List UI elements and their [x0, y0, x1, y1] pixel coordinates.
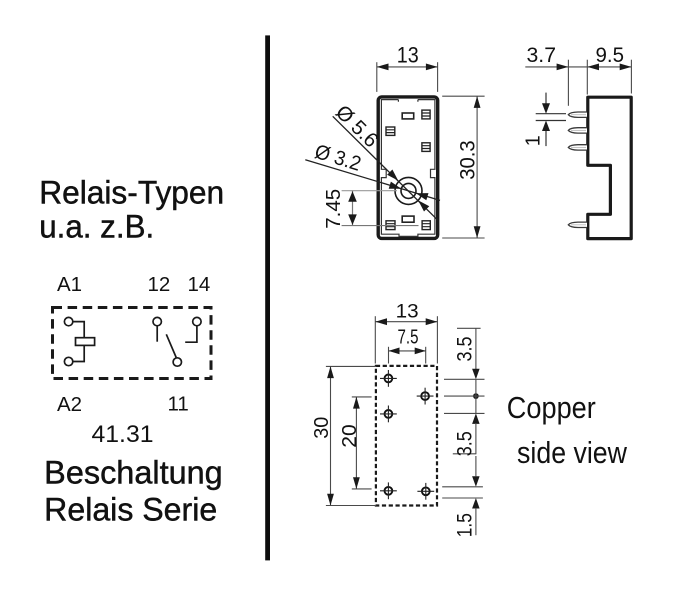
svg-text:1: 1 [523, 135, 545, 146]
svg-text:11: 11 [168, 393, 189, 416]
svg-text:u.a. z.B.: u.a. z.B. [39, 209, 154, 245]
svg-text:7.45: 7.45 [323, 189, 345, 229]
svg-text:41.31: 41.31 [92, 421, 154, 448]
svg-text:A2: A2 [57, 393, 82, 416]
svg-text:30: 30 [310, 417, 333, 439]
svg-text:30.3: 30.3 [457, 140, 480, 180]
svg-text:Relais Serie: Relais Serie [44, 492, 217, 528]
svg-text:Beschaltung: Beschaltung [44, 454, 223, 490]
svg-text:1.5: 1.5 [453, 513, 476, 537]
svg-text:7.5: 7.5 [398, 327, 419, 349]
svg-text:13: 13 [396, 300, 419, 322]
svg-text:3.5: 3.5 [453, 337, 476, 362]
svg-text:3.5: 3.5 [453, 431, 476, 456]
svg-text:13: 13 [397, 42, 419, 67]
svg-text:12: 12 [148, 273, 171, 296]
svg-text:Copper: Copper [507, 390, 596, 425]
svg-text:20: 20 [338, 424, 361, 448]
svg-text:3.7: 3.7 [527, 44, 557, 67]
svg-text:Relais-Typen: Relais-Typen [39, 174, 224, 210]
svg-text:A1: A1 [57, 273, 82, 296]
svg-text:side view: side view [517, 435, 628, 470]
svg-text:14: 14 [188, 273, 211, 296]
